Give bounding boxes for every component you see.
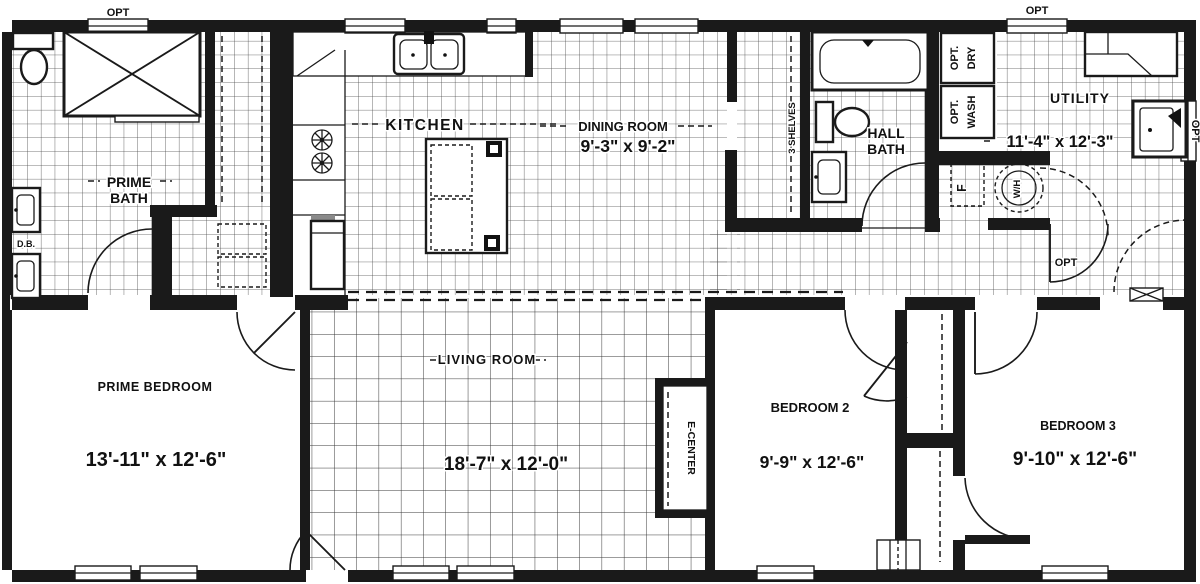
hallway-floor: [710, 230, 740, 295]
opt-label: OPT: [1055, 257, 1078, 269]
dimension-label: 13'-11" x 12'-6": [86, 449, 227, 471]
opt-dry-label: DRY: [966, 46, 978, 69]
dimension-label: 9'-3" x 9'-2": [581, 136, 676, 156]
room-label: LIVING ROOM: [438, 352, 536, 367]
x-vent-box: [1130, 288, 1163, 301]
e-center-niche: [663, 386, 707, 510]
dimension-label: 18'-7" x 12'-0": [444, 454, 568, 475]
closet-door-arc: [965, 478, 1028, 539]
window: [757, 566, 814, 580]
room-label: PRIME: [107, 174, 151, 190]
shelves-label: 3 SHELVES: [787, 102, 798, 154]
utility-sink: [1133, 101, 1186, 157]
room-label: BEDROOM 2: [771, 400, 850, 415]
door-leaf: [254, 312, 295, 353]
toilet-tank: [13, 33, 53, 49]
opt-label: OPT: [1026, 5, 1049, 17]
room-label: PRIME BEDROOM: [98, 380, 213, 394]
window: [345, 19, 405, 33]
room-label: BATH: [867, 141, 905, 157]
room-label: HALL: [867, 125, 905, 141]
living-room-floor: [310, 298, 705, 570]
refrigerator: [311, 215, 344, 289]
utility-counter: [1085, 32, 1177, 76]
floor-plan: OPT OPT OPT OPT PRIME BATH D.B. KITCHEN …: [0, 0, 1200, 584]
water-heater-label: W/H: [1012, 180, 1023, 199]
sink-vanity: [12, 254, 40, 298]
opt-dry-label: OPT.: [949, 46, 961, 70]
window: [140, 566, 197, 580]
opt-niche: [877, 540, 920, 570]
shower-glass: [115, 116, 199, 122]
kitchen-island: [426, 139, 507, 253]
dimension-label: 9'-10" x 12'-6": [1013, 449, 1137, 470]
opt-label: OPT: [107, 7, 130, 19]
furnace-label: F: [955, 184, 969, 192]
window: [635, 19, 698, 33]
window: [1042, 566, 1108, 580]
window: [560, 19, 623, 33]
kitchen-sink: [394, 31, 464, 74]
toilet-bowl: [21, 50, 47, 84]
window: [393, 566, 449, 580]
room-label: BATH: [110, 190, 148, 206]
dimension-label: 9'-9" x 12'-6": [760, 452, 865, 472]
shower: [64, 32, 200, 122]
db-label: D.B.: [17, 239, 35, 249]
e-center-label: E-CENTER: [685, 421, 697, 475]
room-label: UTILITY: [1050, 90, 1110, 106]
floor-plan-drawing: OPT OPT OPT OPT PRIME BATH D.B. KITCHEN …: [0, 0, 1200, 584]
bathtub: [812, 32, 928, 90]
room-label: KITCHEN: [385, 117, 464, 134]
room-label: DINING ROOM: [578, 119, 668, 134]
sink-vanity: [12, 188, 40, 232]
sink-vanity: [812, 152, 846, 202]
window: [457, 566, 514, 580]
window: [1007, 19, 1067, 33]
door-arc: [975, 312, 1037, 374]
window: [487, 19, 516, 33]
dimension-label: 11'-4" x 12'-3": [1007, 133, 1114, 151]
room-label: BEDROOM 3: [1040, 419, 1116, 433]
window: [75, 566, 131, 580]
opt-wash-label: WASH: [966, 95, 978, 128]
opt-label: OPT: [1189, 120, 1200, 143]
opt-wash-label: OPT.: [949, 100, 961, 124]
